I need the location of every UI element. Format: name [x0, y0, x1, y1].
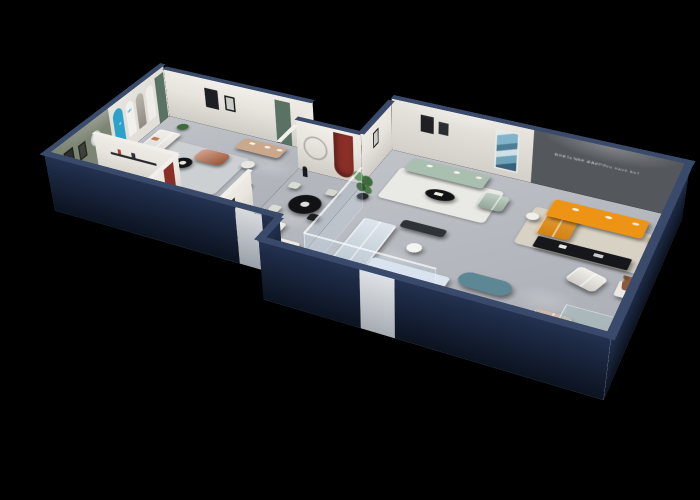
wall-spotlight [532, 129, 690, 197]
art-frame [224, 95, 236, 112]
art-frame-black [204, 88, 219, 110]
shelf-decor [131, 153, 135, 159]
door-leaf-east-south [359, 271, 394, 339]
camera: ✻ 666 [0, 0, 700, 500]
shelf-decor [117, 149, 121, 154]
blue-poster-glyph: ✻ [119, 121, 122, 127]
showroom-render: ✻ 666 [0, 0, 700, 500]
art-frame [373, 127, 379, 148]
poster-number: 666 [127, 107, 132, 115]
wall-spotlight [392, 97, 535, 161]
sculpture-figure [302, 166, 307, 178]
